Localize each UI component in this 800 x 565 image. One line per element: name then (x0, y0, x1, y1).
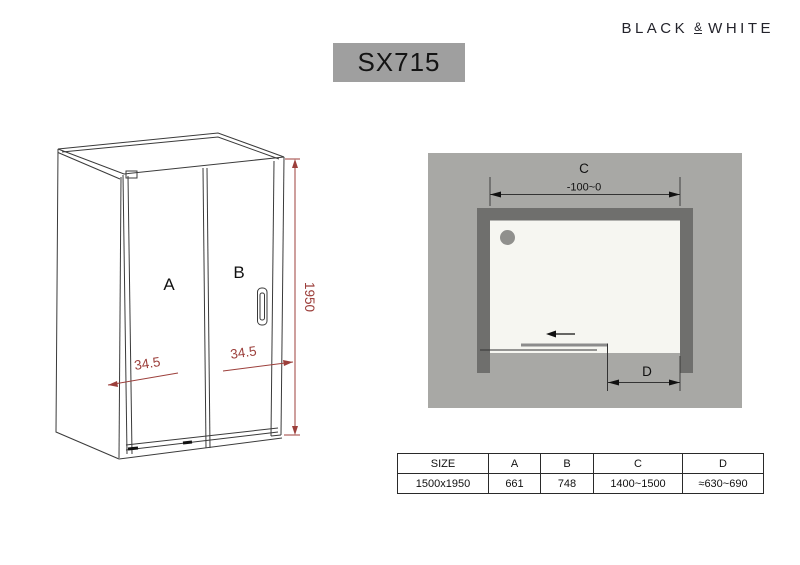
left-offset-dim-value: 34.5 (133, 354, 161, 373)
value-b: 748 (541, 474, 594, 494)
front-perspective-drawing: A B 34.5 34.5 1950 (40, 120, 325, 470)
drain-icon (500, 230, 515, 245)
panel-a-label: A (163, 275, 175, 294)
value-a: 661 (489, 474, 541, 494)
header-a: A (489, 454, 541, 474)
right-offset-dim-line (223, 362, 293, 371)
height-dim-value: 1950 (302, 282, 317, 312)
value-c: 1400~1500 (594, 474, 683, 494)
panel-divider-outer (203, 168, 206, 448)
header-size: SIZE (398, 454, 489, 474)
value-d: ≈630~690 (683, 474, 764, 494)
wall-right (680, 208, 693, 373)
shower-tray (490, 221, 680, 354)
left-wall-outer-edge (56, 149, 119, 459)
right-profile-bottom (271, 435, 281, 436)
panel-divider-inner (207, 168, 210, 448)
spec-table-header-row: SIZE A B C D (398, 454, 764, 474)
left-wall-front-edge (119, 177, 121, 458)
right-profile-outer (281, 157, 284, 435)
top-face-inner-edge (62, 137, 279, 159)
model-number-plate: SX715 (333, 43, 465, 82)
spec-table-value-row: 1500x1950 661 748 1400~1500 ≈630~690 (398, 474, 764, 494)
c-dim-value: -100~0 (567, 182, 602, 194)
height-arrow-down-icon (292, 426, 298, 435)
left-offset-dim-line (108, 373, 178, 385)
value-size: 1500x1950 (398, 474, 489, 494)
left-offset-arrow-icon (108, 381, 118, 387)
left-post-outer (123, 175, 127, 454)
brand-ampersand: & (694, 22, 702, 34)
header-d: D (683, 454, 764, 474)
height-arrow-up-icon (292, 159, 298, 168)
bottom-rail-upper (126, 428, 278, 445)
panel-b-label: B (233, 263, 244, 282)
roller-right (183, 442, 192, 443)
c-dim-label: C (579, 161, 589, 176)
plan-view-diagram: C -100~0 D (428, 153, 742, 408)
left-wall-top-edge (58, 153, 120, 180)
left-post-inner (128, 176, 132, 454)
brand-logo: BLACK&WHITE (621, 20, 774, 36)
top-face (58, 133, 284, 174)
brand-word-white: WHITE (708, 20, 774, 37)
enclosure-outline (56, 133, 284, 459)
right-offset-dim-value: 34.5 (229, 343, 257, 362)
model-number: SX715 (357, 47, 440, 78)
header-c: C (594, 454, 683, 474)
right-profile-inner (271, 161, 274, 436)
wall-top (477, 208, 693, 221)
spec-table: SIZE A B C D 1500x1950 661 748 1400~1500… (397, 453, 764, 494)
d-dim-label: D (642, 364, 652, 379)
header-b: B (541, 454, 594, 474)
brand-word-black: BLACK (621, 20, 688, 37)
wall-left (477, 208, 490, 373)
dimension-texts: 34.5 34.5 1950 (133, 282, 317, 373)
roller-left (128, 448, 138, 449)
door-handle-inner (260, 293, 265, 320)
right-offset-arrow-icon (283, 360, 293, 366)
